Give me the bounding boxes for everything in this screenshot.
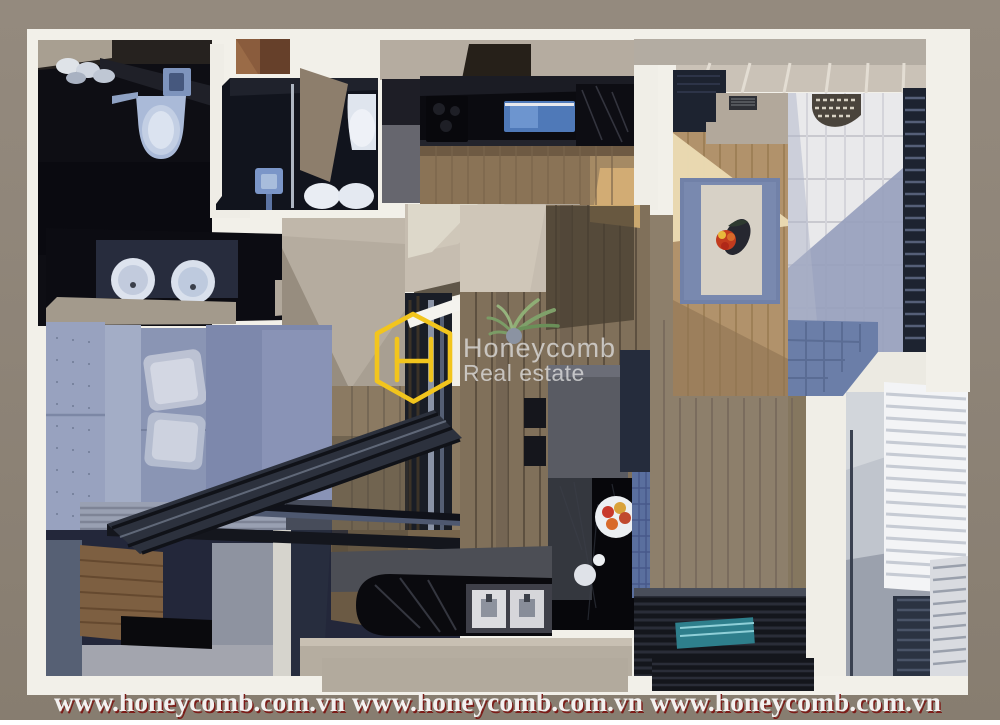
svg-text:Real estate: Real estate — [463, 360, 585, 386]
svg-text:Honeycomb: Honeycomb — [463, 333, 616, 363]
svg-text:www.honeycomb.com.vn www.honey: www.honeycomb.com.vn www.honeycomb.com.v… — [54, 686, 941, 717]
